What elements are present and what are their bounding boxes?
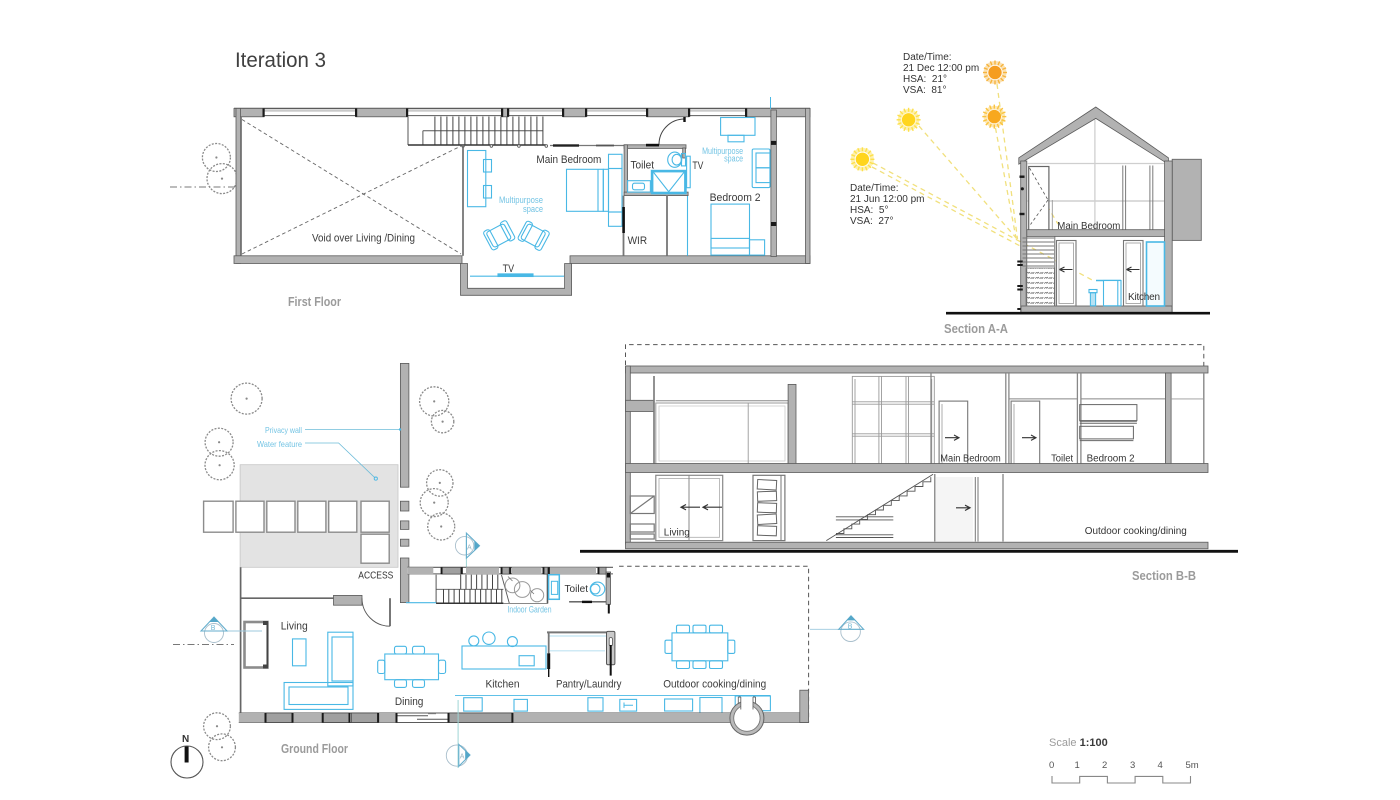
svg-text:HSA: 5°: HSA: 5° <box>850 205 888 216</box>
svg-text:Main Bedroom: Main Bedroom <box>1057 221 1120 232</box>
svg-text:21 Jun 12:00 pm: 21 Jun 12:00 pm <box>850 194 925 205</box>
svg-text:N: N <box>182 734 189 745</box>
svg-text:2: 2 <box>1102 760 1107 771</box>
svg-text:Bedroom 2: Bedroom 2 <box>1087 454 1135 465</box>
svg-text:Privacy wall: Privacy wall <box>265 425 302 435</box>
svg-text:Outdoor cooking/dining: Outdoor cooking/dining <box>1085 526 1187 537</box>
svg-text:Pantry/Laundry: Pantry/Laundry <box>556 678 622 690</box>
svg-text:B: B <box>848 623 853 630</box>
svg-text:A: A <box>460 753 465 760</box>
svg-text:WIR: WIR <box>628 235 648 247</box>
svg-text:Kitchen: Kitchen <box>1128 292 1160 303</box>
svg-text:Kitchen: Kitchen <box>486 678 520 690</box>
svg-text:Dining: Dining <box>395 696 424 708</box>
svg-text:Section A-A: Section A-A <box>944 322 1008 336</box>
svg-text:TV: TV <box>692 160 704 172</box>
svg-text:Bedroom 2: Bedroom 2 <box>710 192 761 204</box>
svg-text:space: space <box>724 154 743 164</box>
svg-text:Main Bedroom: Main Bedroom <box>940 454 1001 465</box>
svg-text:Toilet: Toilet <box>631 160 655 172</box>
svg-text:Ground Floor: Ground Floor <box>281 742 348 756</box>
svg-text:Void over Living /Dining: Void over Living /Dining <box>312 233 415 245</box>
svg-text:VSA: 27°: VSA: 27° <box>850 216 893 227</box>
svg-text:TV: TV <box>503 263 515 275</box>
svg-text:Section B-B: Section B-B <box>1132 569 1196 583</box>
svg-text:4: 4 <box>1158 760 1163 771</box>
svg-text:Indoor Garden: Indoor Garden <box>508 605 552 615</box>
svg-text:Outdoor cooking/dining: Outdoor cooking/dining <box>663 678 766 690</box>
svg-text:Date/Time:: Date/Time: <box>850 183 899 194</box>
svg-text:Iteration 3: Iteration 3 <box>235 48 326 72</box>
svg-text:space: space <box>523 204 543 214</box>
svg-text:Main Bedroom: Main Bedroom <box>536 154 601 166</box>
svg-text:Date/Time:: Date/Time: <box>903 52 952 63</box>
svg-text:ACCESS: ACCESS <box>358 570 393 582</box>
svg-text:Living: Living <box>281 621 308 633</box>
svg-text:Water feature: Water feature <box>257 439 302 449</box>
svg-text:HSA: 21°: HSA: 21° <box>903 74 947 85</box>
svg-text:3: 3 <box>1130 760 1135 771</box>
svg-text:1: 1 <box>1075 760 1080 771</box>
svg-text:21 Dec 12:00 pm: 21 Dec 12:00 pm <box>903 63 979 74</box>
svg-text:Scale 1:100: Scale 1:100 <box>1049 737 1108 749</box>
svg-text:A: A <box>467 544 472 551</box>
svg-text:5m: 5m <box>1186 760 1199 771</box>
svg-text:First Floor: First Floor <box>288 295 341 309</box>
svg-text:Toilet: Toilet <box>565 583 589 595</box>
svg-text:VSA: 81°: VSA: 81° <box>903 85 946 96</box>
svg-text:0: 0 <box>1049 760 1054 771</box>
svg-text:Living: Living <box>664 528 690 539</box>
svg-text:B: B <box>211 625 216 632</box>
svg-text:Toilet: Toilet <box>1051 454 1073 465</box>
